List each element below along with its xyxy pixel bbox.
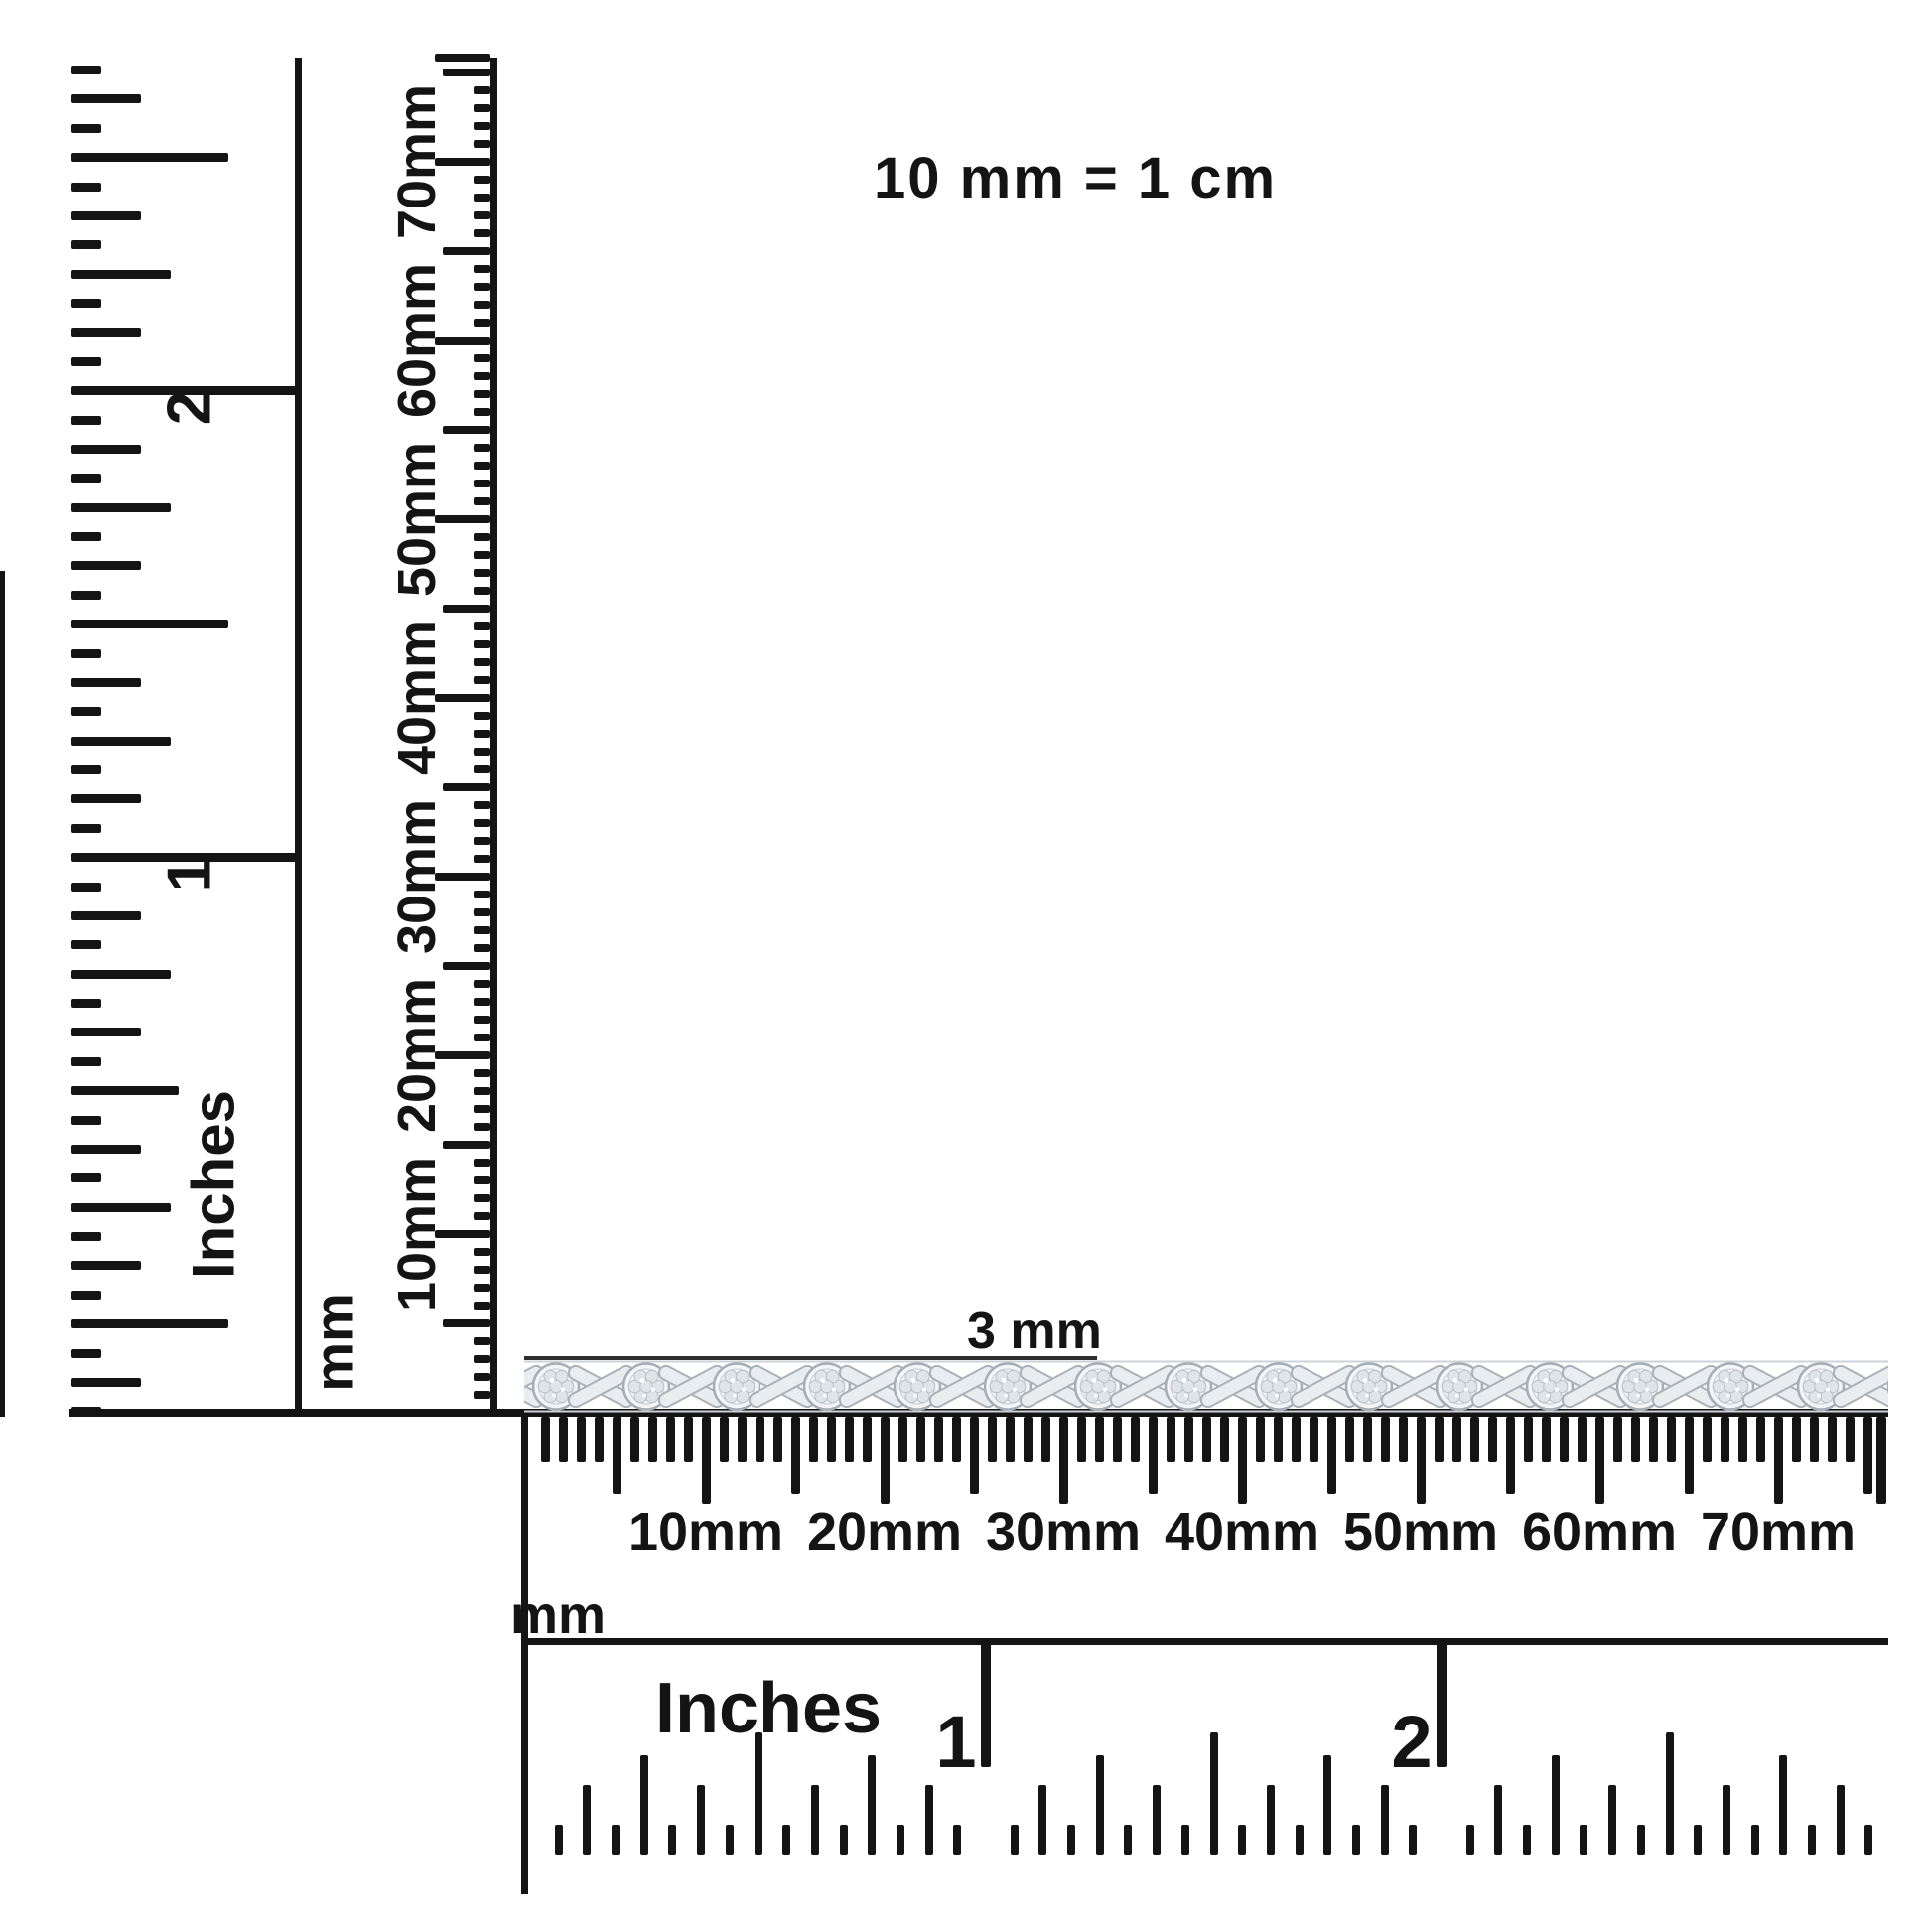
mm-tick <box>1095 1417 1104 1462</box>
mm-tick <box>474 480 490 487</box>
mm-tick <box>559 1417 568 1462</box>
inch-tick <box>71 1145 141 1154</box>
mm-tick <box>474 1194 490 1202</box>
mm-tick <box>474 569 490 577</box>
mm-tick <box>474 497 490 505</box>
mm-tick <box>474 1016 490 1024</box>
inch-tick <box>71 1173 101 1182</box>
mm-tick <box>1220 1417 1229 1462</box>
inch-fraction-tick <box>1466 1825 1474 1855</box>
inch-tick <box>71 940 101 949</box>
mm-tick <box>1667 1417 1676 1462</box>
mm-tick <box>474 658 490 666</box>
mm-tick <box>1256 1417 1265 1462</box>
mm-tick <box>1113 1417 1122 1462</box>
mm-tick <box>1345 1417 1354 1462</box>
inch-tick <box>71 1086 179 1095</box>
mm-tick <box>648 1417 657 1462</box>
inch-fraction-tick <box>1296 1825 1304 1855</box>
mm-tick <box>474 587 490 595</box>
mm-tick <box>474 86 490 94</box>
mm-tick <box>1613 1417 1622 1462</box>
mm-tick <box>756 1417 764 1462</box>
inch-fraction-tick <box>1694 1825 1702 1855</box>
mm-tick <box>474 730 490 738</box>
mm-tick <box>474 104 490 112</box>
mm-tick <box>613 1417 621 1494</box>
inch-number: 2 <box>155 391 225 425</box>
mm-tick <box>1202 1417 1211 1462</box>
mm-tick <box>1059 1417 1068 1504</box>
mm-tick <box>443 426 490 434</box>
mm-ruler-end-tick <box>1876 1417 1886 1504</box>
mm-tick <box>474 1391 490 1399</box>
mm-tick <box>474 140 490 148</box>
mm-tick <box>474 1266 490 1274</box>
mm-tick <box>474 194 490 202</box>
inch-fraction-tick <box>897 1825 904 1855</box>
bottom-block-left-line <box>521 1409 528 1894</box>
inch-tick <box>71 824 101 833</box>
inch-fraction-tick <box>668 1825 676 1855</box>
inch-fraction-tick <box>811 1785 819 1855</box>
inch-tick <box>71 474 101 483</box>
bracelet-graphic <box>524 1360 1888 1413</box>
inch-tick <box>71 970 171 979</box>
inch-fraction-tick <box>1552 1755 1560 1855</box>
mm-tick <box>1363 1417 1372 1462</box>
inch-fraction-tick <box>1837 1785 1845 1855</box>
mm-tick <box>443 783 490 791</box>
mm-tick <box>595 1417 604 1462</box>
mm-tick <box>1149 1417 1158 1494</box>
mm-tick <box>773 1417 782 1462</box>
mm-tick <box>474 122 490 130</box>
mm-tick <box>443 247 490 255</box>
mm-tick <box>1006 1417 1015 1462</box>
inch-tick <box>71 765 101 774</box>
inch-tick <box>71 124 101 133</box>
mm-tick <box>474 622 490 630</box>
mm-tick <box>474 1284 490 1292</box>
mm-tick <box>1810 1417 1819 1462</box>
mm-tick <box>474 462 490 470</box>
mm-tick <box>1184 1417 1193 1462</box>
mm-tick <box>1452 1417 1461 1462</box>
mm-tick <box>1381 1417 1390 1462</box>
vertical-mm-ruler-edge-line <box>490 58 497 1417</box>
mm-tick <box>1828 1417 1837 1462</box>
mm-tick <box>1846 1417 1855 1462</box>
mm-tick <box>474 676 490 684</box>
mm-tick <box>474 837 490 845</box>
inch-number: 2 <box>1382 1700 1442 1784</box>
mm-tick <box>474 819 490 827</box>
mm-tick <box>720 1417 729 1462</box>
inch-fraction-tick <box>1011 1825 1019 1855</box>
mm-tick <box>1292 1417 1301 1462</box>
inch-tick <box>71 678 141 687</box>
inch-fraction-tick <box>1523 1825 1531 1855</box>
mm-tick <box>474 1069 490 1077</box>
mm-tick <box>443 605 490 613</box>
mm-tick <box>1738 1417 1747 1462</box>
vertical-inch-ruler-edge-line <box>295 58 302 1417</box>
mm-tick <box>1703 1417 1712 1462</box>
mm-tick <box>916 1417 925 1462</box>
mm-tick <box>577 1417 586 1462</box>
inch-fraction-tick <box>1267 1785 1275 1855</box>
inch-tick <box>71 591 101 600</box>
inch-fraction-tick <box>555 1825 563 1855</box>
mm-tick <box>1560 1417 1569 1462</box>
mm-tick <box>474 712 490 720</box>
mm-tick <box>474 176 490 184</box>
inch-tick <box>71 1407 101 1416</box>
mm-tick <box>474 390 490 398</box>
mm-tick <box>970 1417 979 1494</box>
inch-tick <box>71 270 171 279</box>
mm-tick <box>474 211 490 219</box>
mm-tick <box>474 801 490 809</box>
mm-tick <box>474 1123 490 1131</box>
mm-tick <box>474 229 490 237</box>
mm-tick <box>952 1417 961 1462</box>
size-chart-image: 10 mm = 1 cm 3 mm Inches mm mm Inches 12… <box>0 0 1932 1932</box>
inch-tick <box>71 357 101 366</box>
mm-tick <box>1649 1417 1658 1462</box>
mm-tick <box>1863 1417 1872 1494</box>
inch-fraction-tick <box>1352 1825 1360 1855</box>
mm-tick <box>474 1105 490 1113</box>
mm-tick-label: 10mm <box>386 1157 448 1311</box>
inch-tick <box>71 1319 228 1328</box>
inch-fraction-tick <box>1096 1755 1104 1855</box>
mm-tick <box>827 1417 836 1462</box>
mm-tick <box>474 372 490 380</box>
mm-tick <box>845 1417 854 1462</box>
mm-tick <box>1435 1417 1444 1462</box>
mm-tick <box>474 533 490 541</box>
inch-fraction-tick <box>1381 1785 1389 1855</box>
mm-tick-label: 50mm <box>1331 1501 1510 1563</box>
mm-tick <box>1274 1417 1283 1462</box>
mm-tick <box>1721 1417 1729 1462</box>
inch-fraction-tick <box>1608 1785 1616 1855</box>
mm-tick <box>474 765 490 773</box>
inch-fraction-tick <box>1067 1825 1075 1855</box>
inch-fraction-tick <box>925 1785 933 1855</box>
mm-tick <box>1685 1417 1694 1494</box>
mm-tick <box>474 926 490 934</box>
mm-tick <box>1792 1417 1801 1462</box>
inch-tick <box>71 999 101 1008</box>
mm-tick <box>881 1417 890 1504</box>
mm-tick-label: 60mm <box>386 263 448 418</box>
mm-tick-label: 50mm <box>386 442 448 597</box>
inch-fraction-tick <box>1864 1825 1872 1855</box>
inch-tick <box>71 240 101 249</box>
inch-tick <box>71 1057 101 1066</box>
inch-fraction-tick <box>583 1785 591 1855</box>
mm-tick-label: 40mm <box>1153 1501 1331 1563</box>
mm-tick <box>474 980 490 988</box>
mm-tick <box>1041 1417 1050 1462</box>
inch-fraction-tick <box>1723 1785 1730 1855</box>
mm-tick <box>474 1337 490 1345</box>
mm-tick <box>474 301 490 309</box>
mm-tick <box>474 1355 490 1363</box>
inch-tick <box>71 66 101 74</box>
inch-fraction-tick <box>1210 1732 1218 1855</box>
mm-tick-label: 60mm <box>1510 1501 1689 1563</box>
inch-tick <box>71 532 101 541</box>
inch-fraction-tick <box>1751 1825 1759 1855</box>
mm-tick <box>684 1417 693 1462</box>
inch-fraction-tick <box>697 1785 705 1855</box>
mm-tick <box>1578 1417 1587 1462</box>
mm-tick <box>474 1373 490 1381</box>
mm-tick <box>702 1417 711 1504</box>
mm-tick-label: 10mm <box>617 1501 795 1563</box>
mm-tick <box>474 265 490 273</box>
inch-fraction-tick <box>1238 1825 1246 1855</box>
bracelet-width-label: 3 mm <box>967 1302 1102 1361</box>
mm-tick <box>1774 1417 1783 1504</box>
mm-tick <box>443 1141 490 1149</box>
mm-tick <box>474 1248 490 1256</box>
mm-tick-label: 20mm <box>795 1501 974 1563</box>
mm-tick <box>541 1417 550 1462</box>
inch-tick <box>71 707 101 716</box>
mm-tick <box>474 408 490 416</box>
inch-tick <box>71 649 101 658</box>
mm-tick <box>1417 1417 1426 1504</box>
mm-tick <box>1542 1417 1551 1462</box>
inch-tick <box>71 211 141 220</box>
photo-left-edge <box>0 571 5 1417</box>
mm-tick <box>474 1302 490 1310</box>
inch-fraction-tick <box>1666 1732 1674 1855</box>
inch-ruler-top-line <box>524 1638 1888 1645</box>
mm-tick <box>738 1417 747 1462</box>
inch-fraction-tick <box>840 1825 848 1855</box>
mm-tick <box>1595 1417 1604 1504</box>
inch-tick <box>71 561 141 570</box>
mm-tick <box>1524 1417 1533 1462</box>
mm-tick <box>474 640 490 648</box>
mm-tick <box>474 855 490 863</box>
mm-tick <box>1327 1417 1336 1494</box>
inch-fraction-tick <box>755 1732 762 1855</box>
mm-tick <box>474 1087 490 1095</box>
mm-tick <box>474 319 490 327</box>
mm-tick <box>1470 1417 1479 1462</box>
mm-tick <box>474 908 490 916</box>
mm-tick <box>435 54 490 62</box>
mm-tick <box>474 891 490 898</box>
mm-tick <box>474 1212 490 1220</box>
mm-tick <box>666 1417 675 1462</box>
vertical-inch-ruler-unit-label: Inches <box>180 1090 248 1279</box>
mm-tick <box>791 1417 800 1494</box>
mm-tick <box>1488 1417 1497 1462</box>
mm-tick <box>1131 1417 1140 1462</box>
mm-tick <box>1238 1417 1247 1504</box>
inch-tick <box>71 416 101 425</box>
mm-tick <box>1167 1417 1175 1462</box>
inch-fraction-tick <box>1038 1785 1046 1855</box>
inch-fraction-tick <box>1580 1825 1587 1855</box>
inch-fraction-tick <box>1637 1825 1645 1855</box>
mm-tick <box>474 444 490 452</box>
mm-tick-label: 20mm <box>386 978 448 1133</box>
inch-number: 1 <box>155 858 225 892</box>
mm-tick <box>443 962 490 970</box>
inch-fraction-tick <box>868 1755 876 1855</box>
mm-tick <box>474 998 490 1006</box>
mm-tick <box>898 1417 907 1462</box>
mm-tick <box>474 1159 490 1167</box>
inch-tick <box>71 911 141 920</box>
mm-tick <box>474 1034 490 1041</box>
inch-fraction-tick <box>1323 1755 1331 1855</box>
inch-fraction-tick <box>1779 1755 1787 1855</box>
mm-tick <box>474 354 490 362</box>
inch-fraction-tick <box>1181 1825 1189 1855</box>
mm-tick <box>443 69 490 76</box>
mm-tick <box>809 1417 818 1462</box>
mm-tick <box>1077 1417 1086 1462</box>
mm-tick <box>863 1417 872 1462</box>
inch-tick <box>71 503 171 512</box>
mm-tick <box>1756 1417 1765 1462</box>
mm-tick <box>1024 1417 1033 1462</box>
inch-tick <box>71 1261 141 1270</box>
mm-tick <box>443 1319 490 1327</box>
inch-tick <box>71 94 141 103</box>
inch-tick <box>71 794 141 803</box>
inch-tick <box>71 883 101 892</box>
inch-tick <box>71 1116 101 1125</box>
inch-tick <box>71 1349 101 1358</box>
inch-fraction-tick <box>1153 1785 1161 1855</box>
inch-tick <box>71 445 141 454</box>
scale-legend: 10 mm = 1 cm <box>874 145 1277 211</box>
inch-tick <box>71 1232 101 1241</box>
mm-tick <box>474 551 490 559</box>
inch-fraction-tick <box>726 1825 734 1855</box>
mm-tick <box>474 944 490 952</box>
mm-tick <box>474 1176 490 1184</box>
inch-fraction-tick <box>1808 1825 1816 1855</box>
mm-tick-label: 70mm <box>1689 1501 1867 1563</box>
inch-tick <box>71 183 101 192</box>
mm-tick-label: 30mm <box>386 799 448 954</box>
inch-tick <box>71 1291 101 1300</box>
mm-tick <box>1399 1417 1408 1462</box>
mm-tick <box>934 1417 943 1462</box>
inch-tick <box>71 1203 171 1212</box>
mm-tick <box>1631 1417 1640 1462</box>
mm-tick <box>988 1417 997 1462</box>
inch-tick <box>71 1028 141 1036</box>
inch-fraction-tick <box>1409 1825 1417 1855</box>
mm-tick <box>1310 1417 1318 1462</box>
inch-tick <box>71 328 141 337</box>
mm-tick-label: 40mm <box>386 621 448 775</box>
inch-tick <box>71 620 228 628</box>
inch-tick <box>71 1378 141 1387</box>
mm-tick <box>630 1417 639 1462</box>
vertical-mm-ruler-unit-label: mm <box>302 1293 366 1392</box>
inch-tick <box>71 153 228 162</box>
inch-number: 1 <box>926 1700 986 1784</box>
inch-fraction-tick <box>640 1755 648 1855</box>
mm-tick-label: 70mm <box>386 84 448 239</box>
horizontal-inch-ruler-unit-label: Inches <box>655 1668 882 1749</box>
inch-fraction-tick <box>1124 1825 1132 1855</box>
inch-tick <box>71 737 171 746</box>
inch-fraction-tick <box>612 1825 620 1855</box>
inch-fraction-tick <box>953 1825 961 1855</box>
inch-fraction-tick <box>1494 1785 1502 1855</box>
inch-tick <box>71 299 101 308</box>
inch-fraction-tick <box>782 1825 790 1855</box>
mm-tick <box>474 283 490 291</box>
mm-tick <box>474 748 490 756</box>
mm-tick <box>1506 1417 1515 1494</box>
mm-tick-label: 30mm <box>974 1501 1153 1563</box>
